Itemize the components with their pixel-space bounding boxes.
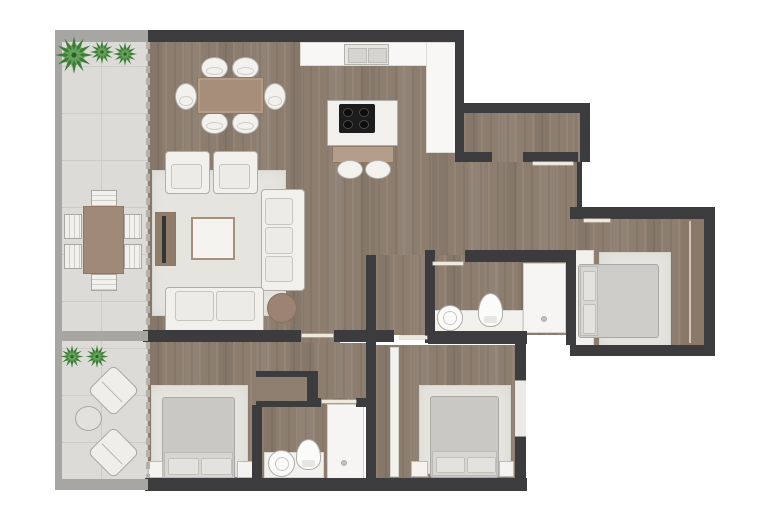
armchair	[165, 151, 210, 194]
door-line	[322, 400, 356, 403]
plant-icon	[60, 345, 84, 368]
cooktop-icon	[339, 104, 375, 133]
washbasin-icon	[437, 305, 463, 331]
outdoor-chair	[64, 244, 82, 269]
wall	[366, 255, 376, 338]
nightstand	[148, 461, 163, 478]
wall	[570, 207, 715, 219]
outdoor-chair	[124, 214, 142, 239]
outdoor-chair	[91, 190, 117, 207]
outdoor-dining-table	[83, 206, 124, 274]
bed-pillows	[580, 266, 598, 336]
wall	[455, 30, 464, 162]
bar-stool	[365, 160, 391, 179]
pouf	[267, 293, 297, 323]
sofa	[261, 189, 305, 291]
toilet-icon	[296, 439, 321, 470]
wardrobe	[682, 219, 704, 345]
toilet-icon	[478, 293, 503, 327]
wardrobe	[390, 347, 399, 477]
wall	[334, 330, 394, 342]
dining-chair	[232, 57, 259, 79]
wall	[465, 250, 576, 262]
wall	[428, 331, 527, 344]
outdoor-chair	[64, 214, 82, 239]
armchair	[213, 151, 258, 194]
wall	[455, 103, 590, 113]
wall	[145, 30, 464, 42]
shower-drain-icon	[341, 460, 347, 466]
plant-icon	[55, 36, 93, 74]
shower-drain-icon	[541, 316, 547, 322]
wall	[580, 103, 590, 162]
door-line	[302, 334, 333, 337]
bar-stool	[337, 160, 363, 179]
tv-icon	[162, 216, 166, 263]
terrace-wall	[55, 331, 148, 341]
wall	[455, 152, 492, 162]
loveseat	[165, 287, 264, 334]
terrace-wall	[55, 479, 148, 490]
wardrobe-door-line	[689, 221, 691, 343]
wall	[570, 345, 715, 356]
wall	[577, 162, 582, 210]
shower	[523, 263, 566, 333]
coffee-table	[191, 217, 235, 260]
wall	[356, 398, 366, 407]
nightstand	[411, 461, 428, 477]
door-line	[584, 219, 610, 222]
door-line	[400, 336, 427, 339]
glass-wall-icon	[146, 342, 150, 478]
kitchen-sink-icon	[344, 44, 389, 65]
wall	[366, 336, 376, 490]
washbasin-icon	[268, 450, 295, 477]
closet-interior	[256, 377, 307, 401]
dining-chair	[201, 112, 228, 134]
wall	[252, 405, 262, 483]
plant-icon	[85, 345, 109, 368]
glass-wall-icon	[146, 42, 150, 330]
wall	[566, 250, 576, 345]
shower	[327, 404, 364, 480]
dining-table	[197, 77, 264, 114]
dining-chair	[175, 83, 197, 110]
plant-icon	[90, 40, 114, 64]
dining-chair	[264, 83, 286, 110]
side-table	[75, 406, 102, 431]
door-line	[533, 162, 573, 165]
plant-icon	[113, 42, 137, 66]
outdoor-chair	[91, 274, 117, 291]
bed-pillows	[432, 451, 497, 476]
wall	[143, 330, 301, 342]
floor-plan	[0, 0, 768, 512]
kitchen-counter-column	[426, 42, 458, 153]
wall	[523, 152, 578, 162]
window-icon	[515, 380, 526, 437]
door-line	[433, 262, 463, 265]
dining-chair	[201, 57, 228, 79]
bed-pillows	[164, 452, 233, 478]
outdoor-chair	[124, 244, 142, 269]
nightstand	[499, 461, 514, 477]
dining-chair	[232, 112, 259, 134]
terrace-wall	[55, 30, 62, 490]
wall	[145, 478, 527, 491]
wall	[704, 207, 715, 356]
